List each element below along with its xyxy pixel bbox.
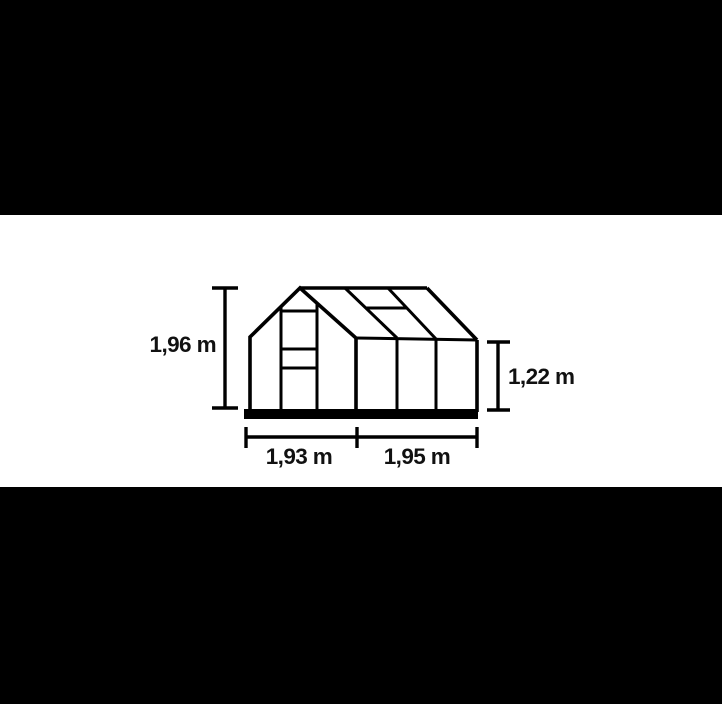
roof-glazing-bar-1 [345,288,397,338]
roof-hip-edge [427,288,477,340]
greenhouse-drawing [250,288,477,412]
ridge-height-label: 1,96 m [150,332,216,357]
roof-glazing-bar-2 [388,288,436,339]
greenhouse-dimension-diagram: 1,96 m 1,22 m 1,93 m 1,95 m [0,0,722,704]
letterbox-top [0,0,722,215]
dimension-lines [212,288,510,448]
screenshot-canvas: 1,96 m 1,22 m 1,93 m 1,95 m [0,0,722,704]
base-sill [244,409,478,419]
letterbox-bottom [0,487,722,704]
front-width-label: 1,93 m [266,444,332,469]
eave-line [356,338,477,340]
side-length-label: 1,95 m [384,444,450,469]
eave-height-label: 1,22 m [508,364,574,389]
